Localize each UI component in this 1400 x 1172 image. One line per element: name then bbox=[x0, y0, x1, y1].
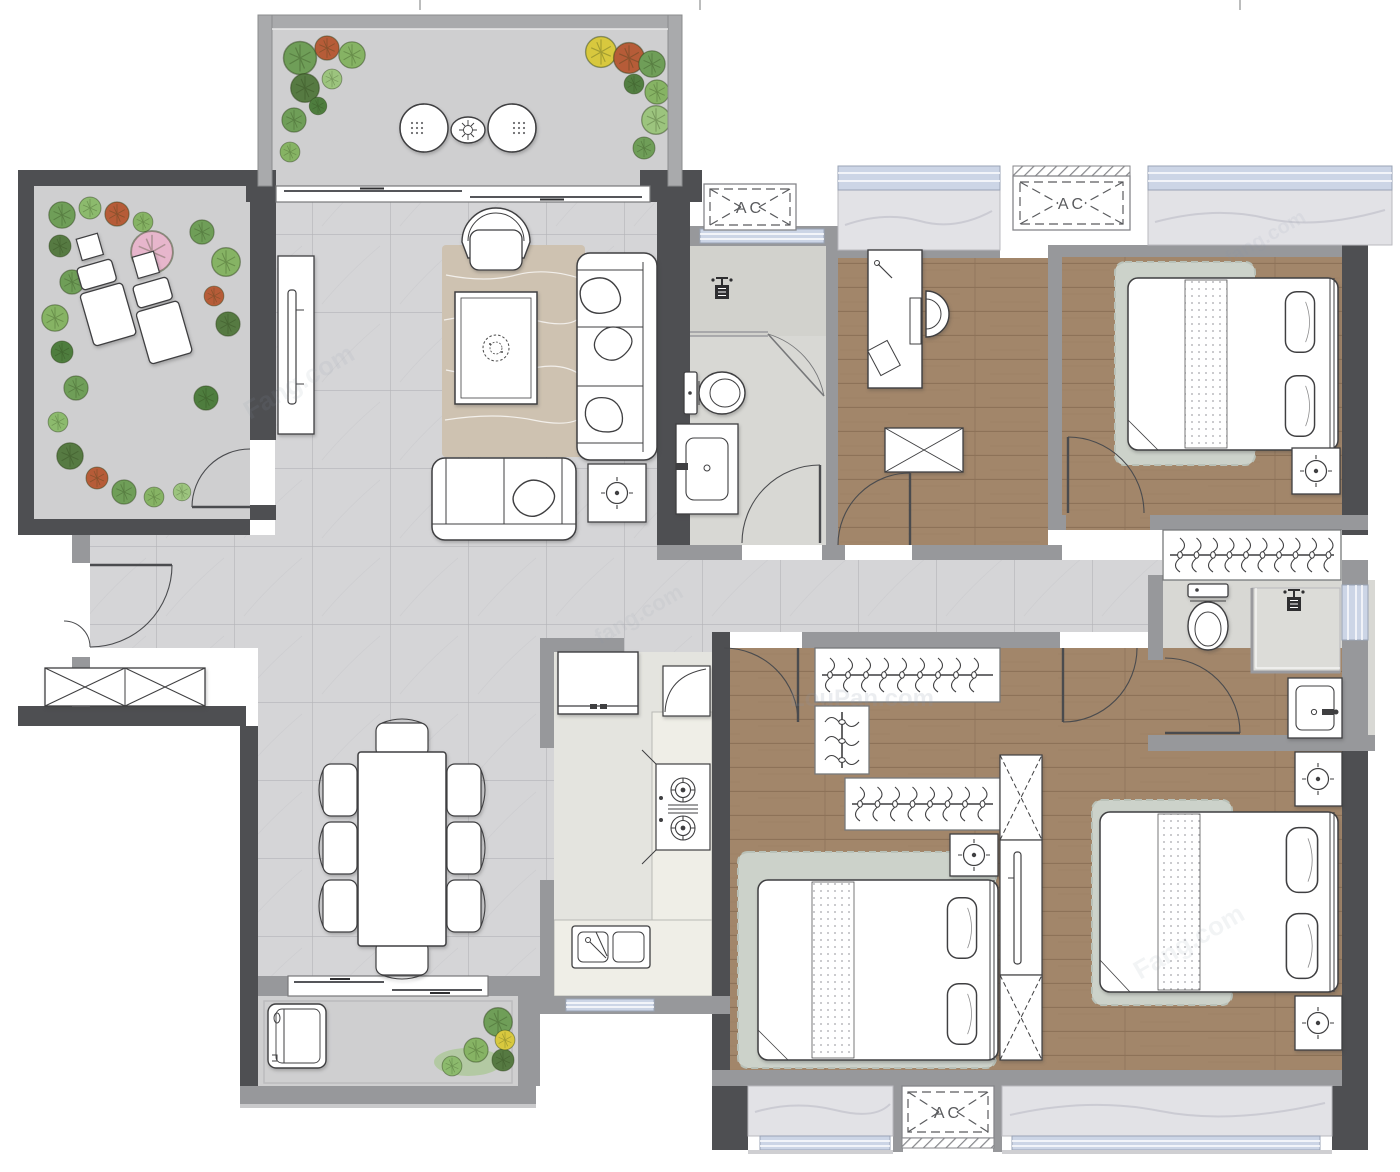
living-balcony-slider bbox=[276, 186, 650, 202]
monitor bbox=[910, 298, 921, 344]
washing-machine bbox=[268, 1004, 326, 1068]
ac-unit-1: AC bbox=[704, 184, 796, 230]
ac-label: AC bbox=[1058, 196, 1086, 213]
bed-runner bbox=[812, 882, 854, 1058]
bay-outer-line bbox=[748, 1150, 893, 1154]
divider-cabinet-tv bbox=[1000, 755, 1042, 1060]
dining-table bbox=[358, 752, 446, 946]
shower-zone-guest bbox=[690, 245, 826, 336]
dimension-ticks bbox=[420, 0, 1240, 10]
nightstand-lamp bbox=[950, 834, 998, 876]
ac-unit-3: AC bbox=[902, 1086, 994, 1148]
balcony-outer-edge bbox=[240, 1104, 536, 1108]
dining-chair bbox=[319, 822, 357, 874]
bed bbox=[758, 880, 998, 1060]
watermark: LouPan.com bbox=[790, 685, 934, 712]
ac-label: AC bbox=[736, 200, 764, 217]
coffee-table bbox=[455, 292, 537, 404]
corridor-floor bbox=[712, 560, 1162, 632]
dining-chair bbox=[447, 764, 485, 816]
tv-screen bbox=[1014, 852, 1021, 964]
study-cabinet bbox=[885, 428, 963, 472]
floor-plan-page: AC AC AC bbox=[0, 0, 1400, 1172]
vanity-sink bbox=[676, 424, 738, 514]
desk bbox=[868, 250, 922, 388]
wardrobe-rack-corridor bbox=[1163, 530, 1341, 580]
vanity-sink bbox=[1288, 678, 1342, 738]
bay-outer-line bbox=[1002, 1150, 1332, 1154]
ac-label: AC bbox=[934, 1105, 962, 1122]
dining-chair bbox=[447, 880, 485, 932]
loveseat bbox=[432, 458, 576, 540]
wardrobe-rack bbox=[815, 706, 869, 774]
bucket-chair bbox=[400, 104, 448, 152]
side-table-lamp bbox=[588, 464, 646, 522]
dining-chair bbox=[447, 822, 485, 874]
kitchen-sink bbox=[572, 926, 650, 968]
toilet bbox=[1188, 584, 1228, 650]
fridge bbox=[558, 652, 638, 714]
armchair bbox=[462, 208, 530, 270]
hall-floor bbox=[624, 632, 712, 652]
ac-unit-2: AC bbox=[1013, 166, 1130, 230]
dining-chair bbox=[319, 764, 357, 816]
bed bbox=[1128, 278, 1338, 450]
toilet bbox=[684, 372, 745, 414]
bucket-chair bbox=[488, 104, 536, 152]
nightstand-lamp bbox=[1292, 448, 1340, 494]
nightstand-lamp bbox=[1295, 752, 1342, 806]
shoe-cabinet bbox=[45, 668, 205, 706]
nightstand-lamp bbox=[1295, 996, 1342, 1050]
floor-plan: AC AC AC bbox=[0, 0, 1400, 1172]
wardrobe-rack bbox=[845, 778, 1000, 830]
sofa bbox=[576, 253, 657, 460]
bed-runner bbox=[1185, 280, 1227, 448]
kitchen-cabinet bbox=[663, 666, 710, 716]
laundry-slider bbox=[288, 976, 488, 996]
dining-chair bbox=[319, 880, 357, 932]
